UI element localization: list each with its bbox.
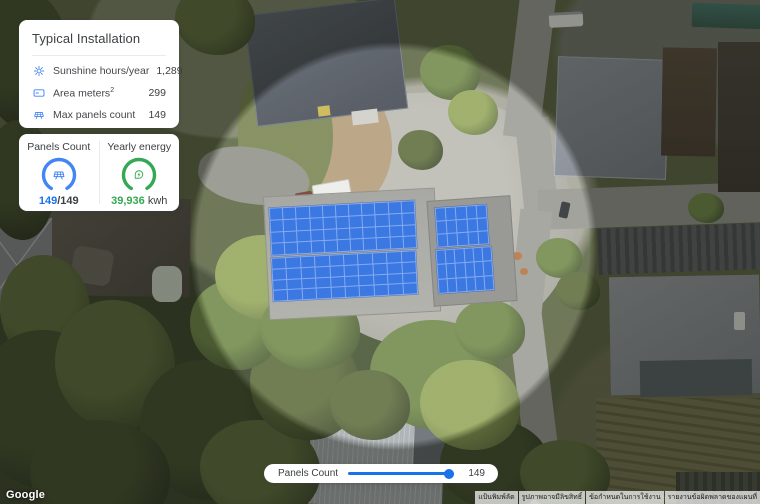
area-icon <box>32 86 46 100</box>
yearly-energy-value: 39,936 kwh <box>111 195 167 207</box>
house-roof-right <box>718 42 760 192</box>
max-panels-label: Max panels count <box>53 109 135 121</box>
report-map-error-link[interactable]: รายงานข้อผิดพลาดของแผนที่ <box>665 491 760 504</box>
greenhouse <box>152 266 182 302</box>
area-value: 299 <box>148 87 166 99</box>
tree-canopy <box>688 193 724 223</box>
sunshine-row: Sunshine hours/year 1,289 <box>32 60 166 82</box>
house-roof-right <box>661 48 717 157</box>
slider-thumb[interactable] <box>444 469 454 479</box>
sunshine-label: Sunshine hours/year <box>53 65 149 77</box>
yearly-energy-title: Yearly energy <box>107 141 171 153</box>
panels-count-value: 149/149 <box>39 195 79 207</box>
panels-count-gauge: Panels Count 149/149 <box>19 134 99 211</box>
area-row: Area meters2 299 <box>32 82 166 104</box>
terms-of-use-link[interactable]: ข้อกำหนดในการใช้งาน <box>586 491 664 504</box>
energy-leaf-icon <box>131 167 147 183</box>
panels-gauge-dial <box>40 156 78 194</box>
slider-track[interactable] <box>348 472 454 475</box>
tree-canopy <box>398 130 443 170</box>
panels-count-title: Panels Count <box>27 141 90 153</box>
tree-canopy <box>455 300 525 360</box>
divider <box>32 55 166 56</box>
card-title: Typical Installation <box>32 31 166 46</box>
area-label: Area meters2 <box>53 87 114 100</box>
max-panels-row: Max panels count 149 <box>32 104 166 126</box>
slider-label: Panels Count <box>278 468 338 479</box>
max-panels-value: 149 <box>148 109 166 121</box>
keyboard-shortcuts-link[interactable]: แป้นพิมพ์ลัด <box>475 491 517 504</box>
solar-panel-icon <box>32 108 46 122</box>
energy-gauge-dial <box>120 156 158 194</box>
map-attribution: แป้นพิมพ์ลัด รูปภาพอาจมีลิขสิทธิ์ ข้อกำห… <box>475 491 760 504</box>
house-annex-roof <box>640 359 753 397</box>
yearly-energy-gauge: Yearly energy 39,936 kwh <box>100 134 180 211</box>
warehouse-roof <box>692 3 760 29</box>
house-roof-right <box>554 56 670 180</box>
solar-panel-icon <box>51 167 67 183</box>
building-roof <box>426 195 517 307</box>
tree-canopy <box>556 272 600 310</box>
tree-canopy <box>448 90 498 135</box>
sunshine-value: 1,289 <box>156 65 182 77</box>
slider-value: 149 <box>468 468 485 479</box>
typical-installation-card: Typical Installation Sunshine hours/year… <box>19 20 179 128</box>
flower-bush <box>520 268 528 275</box>
panels-count-slider[interactable]: Panels Count 149 <box>264 464 498 483</box>
building-roof <box>263 188 441 321</box>
tree-canopy <box>175 0 255 55</box>
tree-canopy <box>330 370 410 440</box>
shed <box>317 105 330 116</box>
car <box>734 312 745 330</box>
solar-tool-screen: Typical Installation Sunshine hours/year… <box>0 0 760 504</box>
van <box>549 11 584 28</box>
imagery-copyright-link[interactable]: รูปภาพอาจมีลิขสิทธิ์ <box>519 491 585 504</box>
sun-icon <box>32 64 46 78</box>
google-watermark[interactable]: Google <box>6 489 45 501</box>
gauges-card: Panels Count 149/149 Yearly energy <box>19 134 179 211</box>
row-houses-roof <box>597 223 760 275</box>
